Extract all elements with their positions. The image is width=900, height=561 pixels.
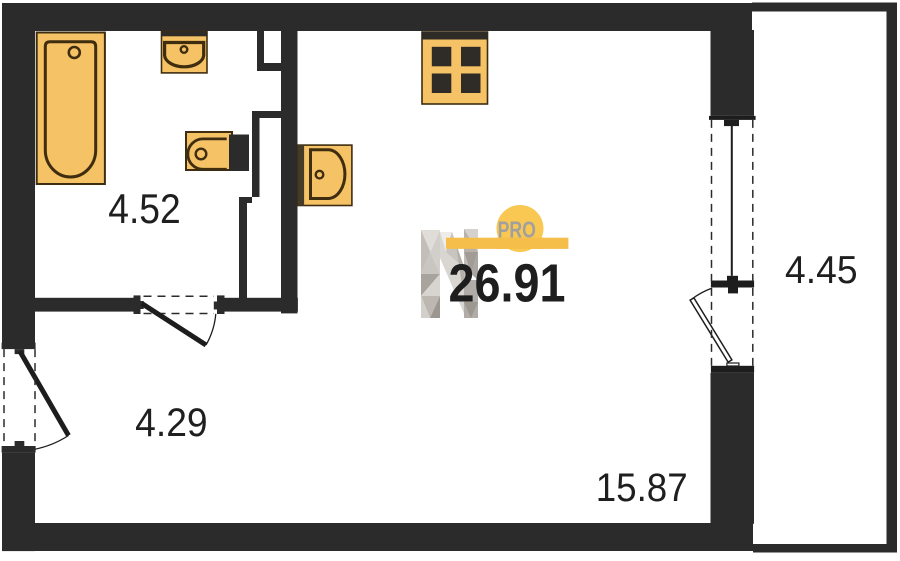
svg-text:4.45: 4.45 (785, 249, 858, 292)
svg-text:PRO: PRO (498, 217, 536, 243)
svg-text:26.91: 26.91 (449, 254, 566, 314)
svg-text:4.29: 4.29 (135, 401, 208, 445)
svg-text:15.87: 15.87 (596, 466, 688, 510)
svg-text:4.52: 4.52 (108, 185, 181, 232)
